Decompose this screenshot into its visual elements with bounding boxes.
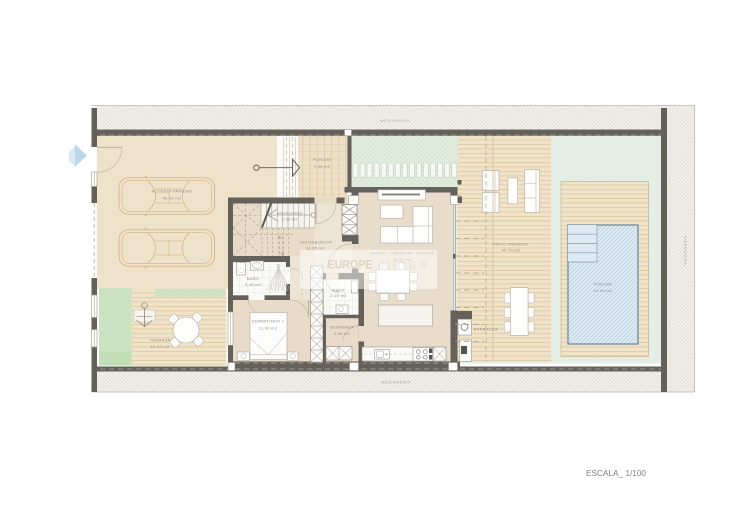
svg-text:IN ITI E S: IN ITI E S: [378, 260, 427, 272]
svg-text:2.20 m2: 2.20 m2: [330, 293, 347, 298]
svg-text:MEDIANERIA: MEDIANERIA: [381, 380, 411, 385]
svg-text:3.45 m2: 3.45 m2: [245, 282, 262, 287]
svg-text:2.65 m2: 2.65 m2: [334, 331, 351, 336]
svg-text:BAÑO: BAÑO: [247, 276, 259, 281]
svg-text:DORMITORIO 1: DORMITORIO 1: [252, 319, 285, 324]
svg-text:DISTRIBUIDOR: DISTRIBUIDOR: [300, 239, 332, 244]
svg-text:2.05 m2: 2.05 m2: [282, 218, 298, 222]
svg-text:DESPENSA: DESPENSA: [330, 325, 354, 330]
svg-text:46.30 m2: 46.30 m2: [163, 196, 182, 201]
svg-text:ESCALERAS: ESCALERAS: [277, 212, 303, 216]
svg-text:PORCHE: PORCHE: [313, 157, 332, 162]
svg-text:EUROPE: EUROPE: [328, 258, 373, 272]
svg-text:ACCESO/ PARKING: ACCESO/ PARKING: [151, 189, 192, 194]
svg-text:11.95 m2: 11.95 m2: [306, 245, 325, 250]
svg-text:PATIO TRASERO: PATIO TRASERO: [493, 242, 528, 247]
svg-text:MEDIANERIA: MEDIANERIA: [380, 118, 410, 123]
svg-text:ESCALA_ 1/100: ESCALA_ 1/100: [586, 468, 646, 478]
svg-text:TERRAZA: TERRAZA: [150, 338, 171, 343]
svg-text:11.90 m2: 11.90 m2: [259, 326, 278, 331]
svg-text:7.45 m2: 7.45 m2: [314, 164, 331, 169]
svg-text:15.00 m2: 15.00 m2: [594, 288, 613, 293]
svg-text:MEDIANERIA: MEDIANERIA: [683, 235, 688, 265]
svg-text:48.70 m2: 48.70 m2: [502, 248, 521, 253]
svg-text:PISCINA: PISCINA: [594, 282, 612, 287]
svg-text:BARBACOA: BARBACOA: [474, 327, 499, 332]
svg-text:10.40 m2: 10.40 m2: [151, 344, 170, 349]
